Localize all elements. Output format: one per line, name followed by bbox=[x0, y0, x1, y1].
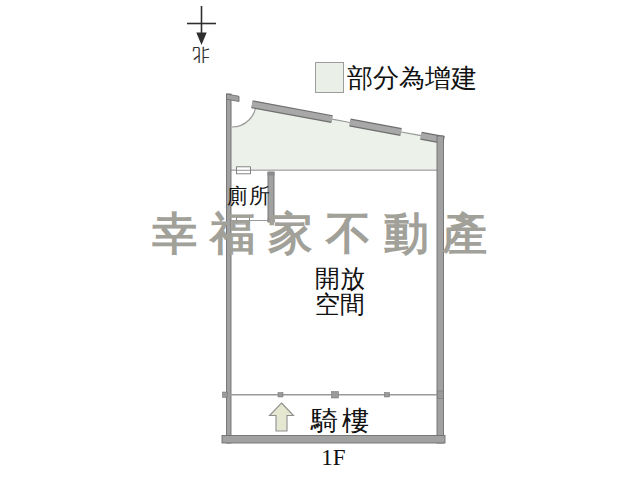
open-space-line2: 空間 bbox=[297, 292, 383, 318]
toilet-label: 廁所 bbox=[227, 182, 271, 210]
toilet-wall-cap-top bbox=[268, 172, 275, 176]
addition-area bbox=[231, 102, 442, 169]
open-space-line1: 開放 bbox=[297, 266, 383, 292]
left-wall bbox=[227, 94, 232, 443]
legend-swatch bbox=[315, 62, 344, 93]
north-label: 北 bbox=[191, 44, 211, 64]
north-arrow-icon bbox=[187, 6, 216, 45]
watermark: 幸福家不動產 bbox=[152, 211, 500, 257]
arcade-label: 騎樓 bbox=[311, 403, 373, 439]
storefront-line bbox=[223, 391, 444, 399]
entrance-arrow-icon bbox=[270, 403, 294, 431]
floor-label: 1F bbox=[222, 445, 445, 471]
open-space-label: 開放 空間 bbox=[297, 266, 383, 318]
floor-plan-page: 幸福家不動產 北 部分為增建 廁所 開放 空間 騎樓 1F bbox=[0, 0, 640, 480]
legend-label: 部分為增建 bbox=[347, 61, 477, 96]
